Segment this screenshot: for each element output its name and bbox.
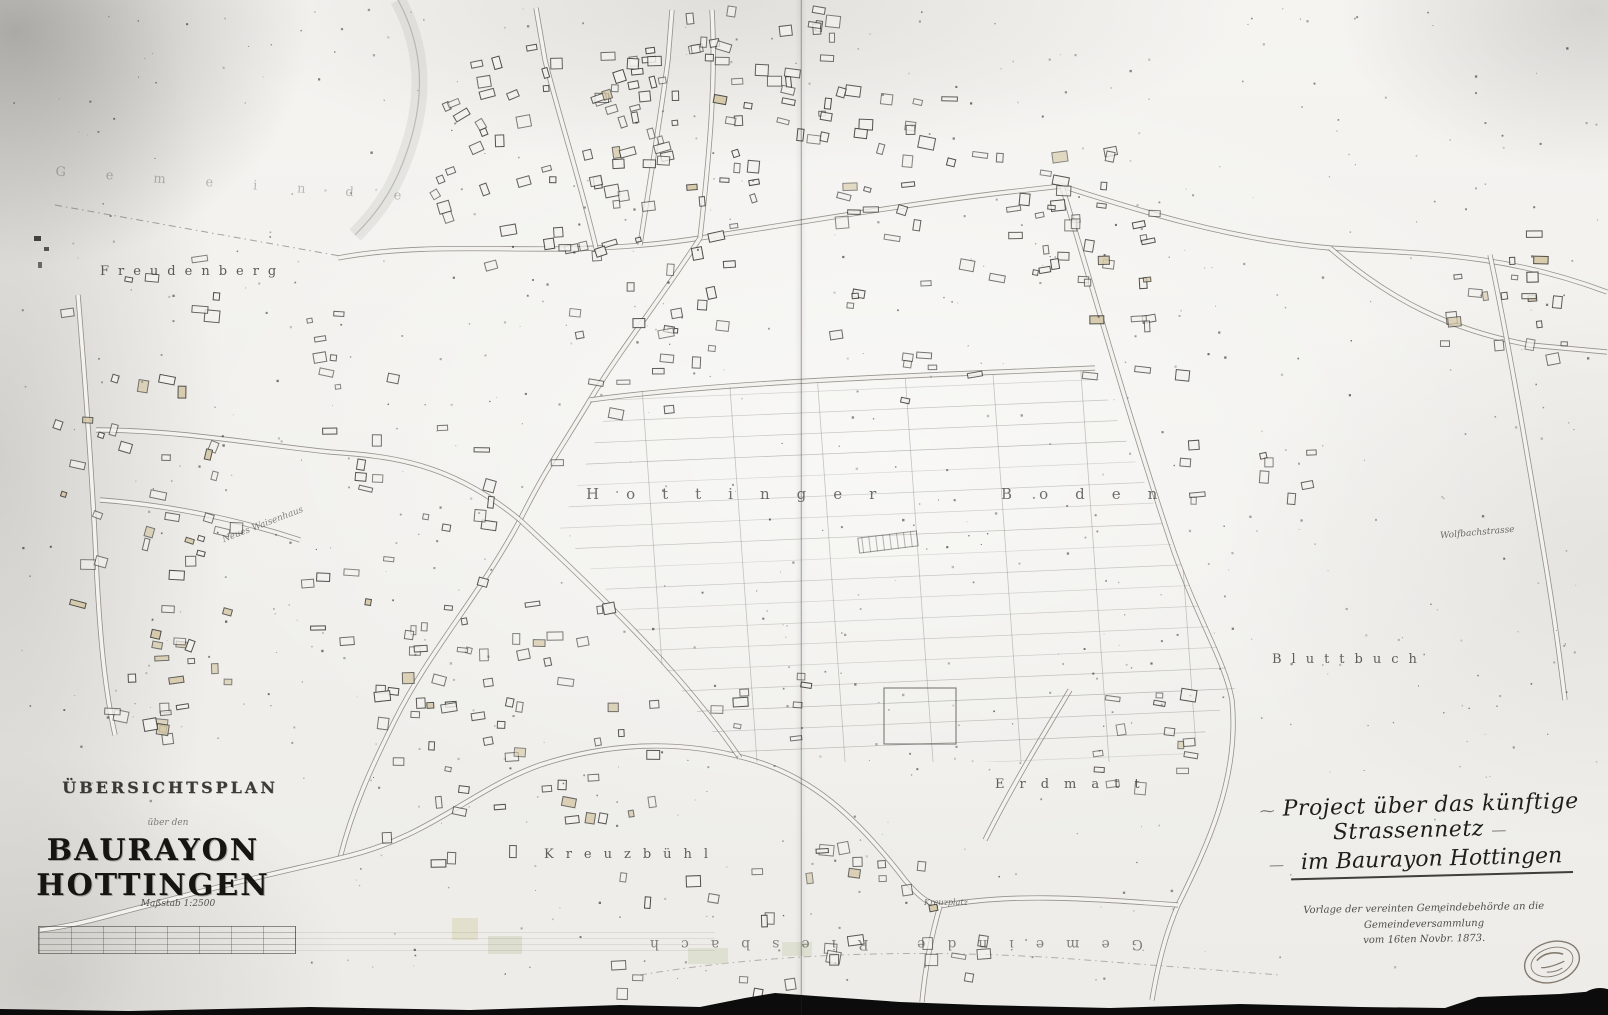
project-title-line1: ⁓ Project über das künftige Strassennetz… <box>1247 789 1592 848</box>
paper-fold-line <box>795 0 807 1015</box>
flourish-ornament-icon: ⁓ <box>1260 802 1276 820</box>
note-line1: Vorlage der vereinten Gemeindebehörde an… <box>1303 901 1544 931</box>
label-kreuzbuehl: Kreuzbühl <box>544 847 720 862</box>
note-line2: vom 16ten Novbr. 1873. <box>1363 933 1485 946</box>
scale-bar <box>38 926 296 954</box>
ink-speck <box>44 247 49 251</box>
project-submission-note: Vorlage der vereinten Gemeindebehörde an… <box>1252 898 1597 950</box>
label-freudenberg: Freudenberg <box>100 264 285 279</box>
ink-speck <box>38 262 42 268</box>
label-kreuzplatz: Kreuzplatz <box>924 898 968 907</box>
map-title-baurayon-hottingen: BAURAYON HOTTINGEN <box>0 833 318 903</box>
flourish-dash-icon: — <box>1491 821 1507 839</box>
ink-speck <box>34 236 41 241</box>
large-parcel-outline <box>884 688 956 744</box>
label-bluttbuch: Bluttbuch <box>1272 652 1427 667</box>
scanned-map-sheet: Gemeinde Freudenberg Hottinger Boden Kre… <box>0 0 1608 1015</box>
flourish-dash-icon: — <box>1269 856 1284 874</box>
scale-bar-ruling <box>295 927 715 953</box>
map-scale-text: Maßstab 1:2500 <box>118 899 238 909</box>
map-title-ueber-den: über den <box>98 818 238 828</box>
label-erdmatt: Erdmatt <box>995 777 1155 792</box>
project-title-block: ⁓ Project über das künftige Strassennetz… <box>1247 789 1593 882</box>
field-strips <box>540 352 1250 802</box>
label-hottinger-boden: Hottinger Boden <box>586 485 1184 503</box>
map-title-uebersichtsplan: ÜBERSICHTSPLAN <box>58 778 282 797</box>
boundary-line-nw <box>55 205 340 256</box>
